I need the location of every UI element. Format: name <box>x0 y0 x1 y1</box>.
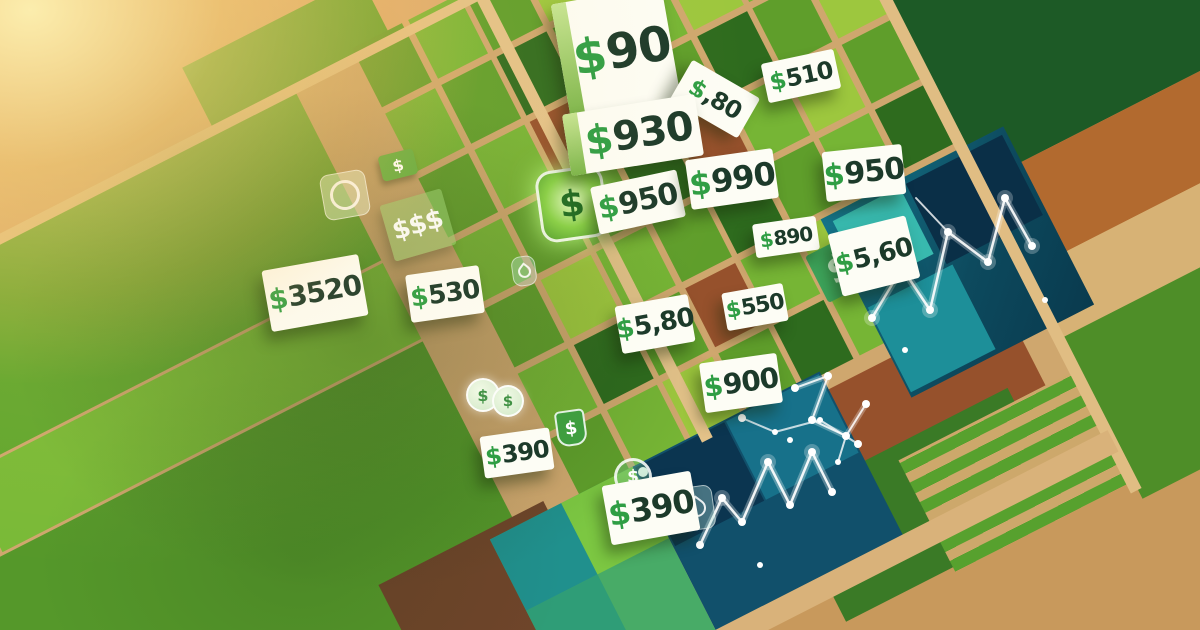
price-amount: 3520 <box>286 271 364 311</box>
price-amount: 550 <box>739 291 785 320</box>
dollar-glyph: $ <box>477 386 488 405</box>
dollar-glyph: $ <box>557 182 588 226</box>
dollar-glyph: $ <box>503 392 513 410</box>
price-amount: 510 <box>784 58 835 91</box>
price-amount: 90 <box>602 19 674 78</box>
price-amount: 950 <box>616 179 681 221</box>
water-drop-icon <box>510 254 538 287</box>
price-amount: 390 <box>628 485 696 528</box>
price-amount: 530 <box>427 276 481 309</box>
price-amount: 900 <box>721 364 780 399</box>
price-currency: $ <box>687 166 713 201</box>
price-amount: 390 <box>500 437 550 467</box>
price-amount: 5,60 <box>850 234 915 274</box>
drop-glyph <box>515 262 533 280</box>
dollar-glyph: $ <box>563 417 578 440</box>
price-amount: 950 <box>843 154 905 190</box>
price-currency: $ <box>702 372 724 402</box>
price-currency: $ <box>484 443 503 469</box>
price-currency: $ <box>822 160 845 192</box>
price-currency: $$$ <box>389 206 445 245</box>
aerial-farmland-scene: $ $ $ $ $ $ $ $90 $,80 $510 $930 $950 $9… <box>0 0 1200 630</box>
dollar-coin-icon: $ <box>492 385 524 417</box>
price-amount: 890 <box>772 223 813 248</box>
price-amount: 5,80 <box>632 304 696 340</box>
price-currency: $ <box>759 229 775 251</box>
price-tag: $530 <box>405 265 485 323</box>
price-amount: 990 <box>709 157 777 198</box>
price-amount: 930 <box>610 106 696 158</box>
cycle-badge-icon <box>318 168 371 221</box>
price-amount: ,80 <box>699 83 745 124</box>
price-currency: $ <box>409 284 430 312</box>
ring-glyph <box>328 178 363 213</box>
dollar-glyph: $ <box>390 154 405 175</box>
price-tag: $950 <box>822 144 907 202</box>
dollar-shield-icon: $ <box>554 408 589 448</box>
